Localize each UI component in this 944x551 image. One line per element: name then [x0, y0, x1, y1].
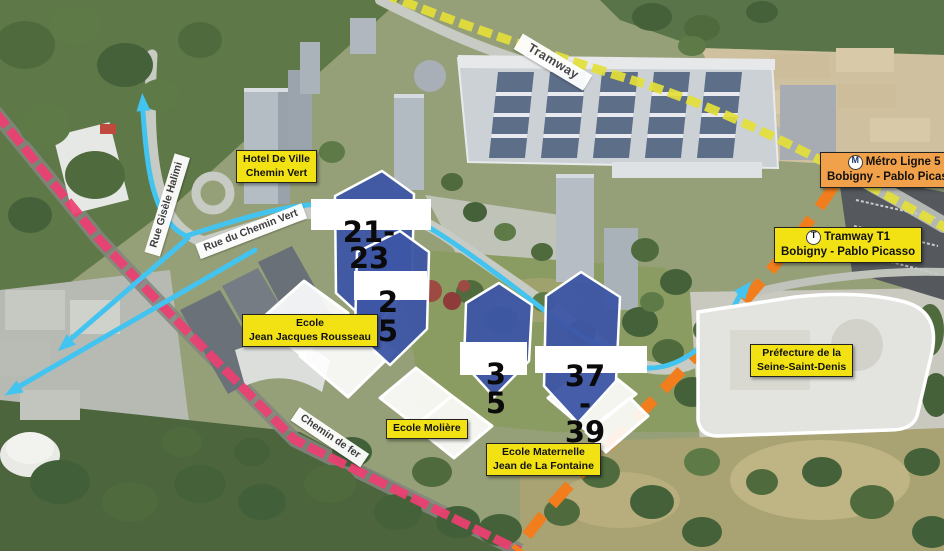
metro-line5-label: M Métro Ligne 5 Bobigny - Pablo Picasso [820, 152, 944, 188]
aerial-basemap [0, 0, 944, 551]
metro-icon: M [848, 155, 863, 170]
building-number-35: 3 5 [470, 360, 522, 418]
building-number-21-23: 21- 23 [339, 219, 399, 271]
ecole-moliere-label: Ecole Molière [386, 419, 468, 439]
ecole-rousseau-label: Ecole Jean Jacques Rousseau [242, 314, 378, 347]
building-number-37-39: 37 - 39 [556, 362, 614, 446]
hotel-de-ville-label: Hotel De Ville Chemin Vert [236, 150, 317, 183]
annotated-aerial-map: 21- 23 2 5 3 5 37 - 39 Hotel De Ville Ch… [0, 0, 944, 551]
prefecture-label: Préfecture de la Seine-Saint-Denis [750, 344, 853, 377]
tramway-t1-label: T Tramway T1 Bobigny - Pablo Picasso [774, 227, 922, 263]
tram-icon: T [806, 230, 821, 245]
ecole-maternelle-label: Ecole Maternelle Jean de La Fontaine [486, 443, 601, 476]
